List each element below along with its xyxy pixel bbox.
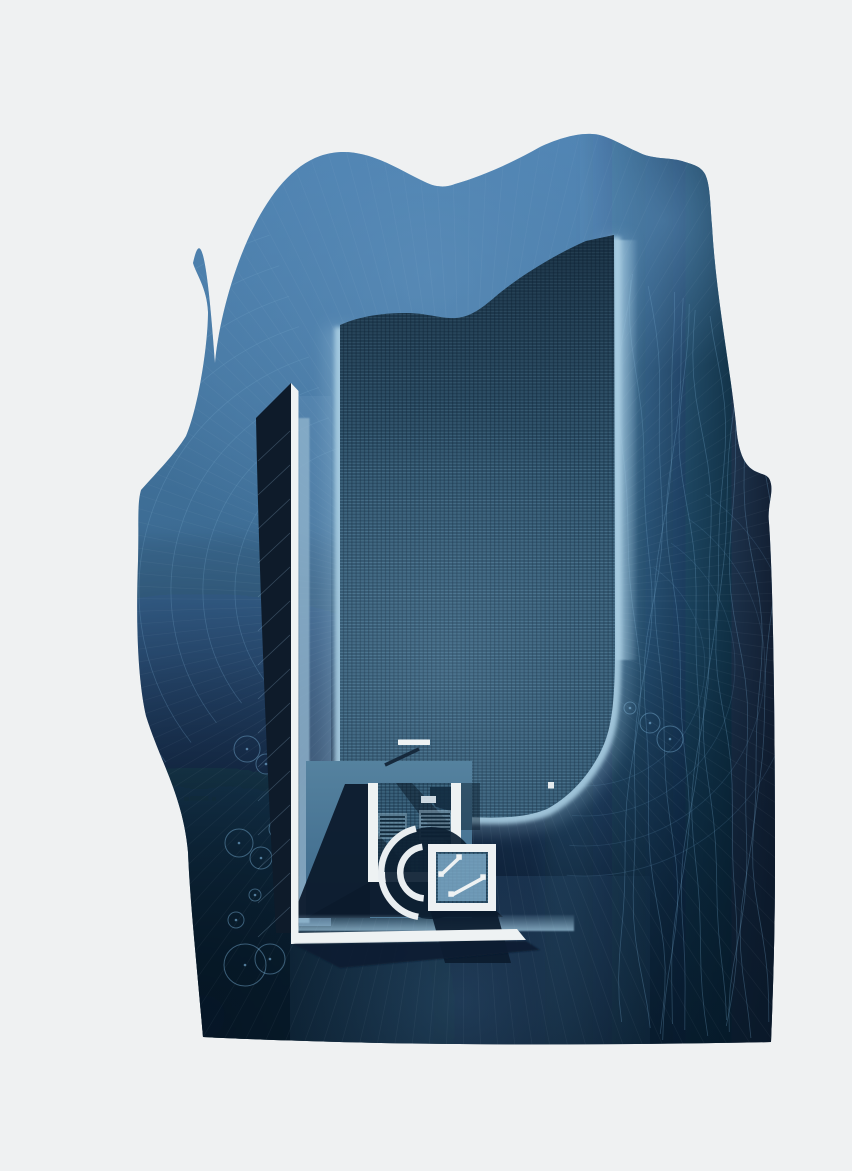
artwork-photo: Abstract blue architectural screenprint … — [40, 16, 852, 1155]
square-panel — [438, 854, 486, 901]
outlined-square — [432, 848, 492, 907]
l-vertical-stripe — [291, 383, 299, 933]
u-left-stroke — [368, 783, 378, 882]
not-equal-glyph-bar — [398, 740, 430, 746]
notch-dash — [421, 796, 436, 803]
small-square-dot — [548, 782, 554, 789]
right-edge-shade — [461, 783, 480, 830]
artwork-canvas — [40, 16, 852, 1155]
